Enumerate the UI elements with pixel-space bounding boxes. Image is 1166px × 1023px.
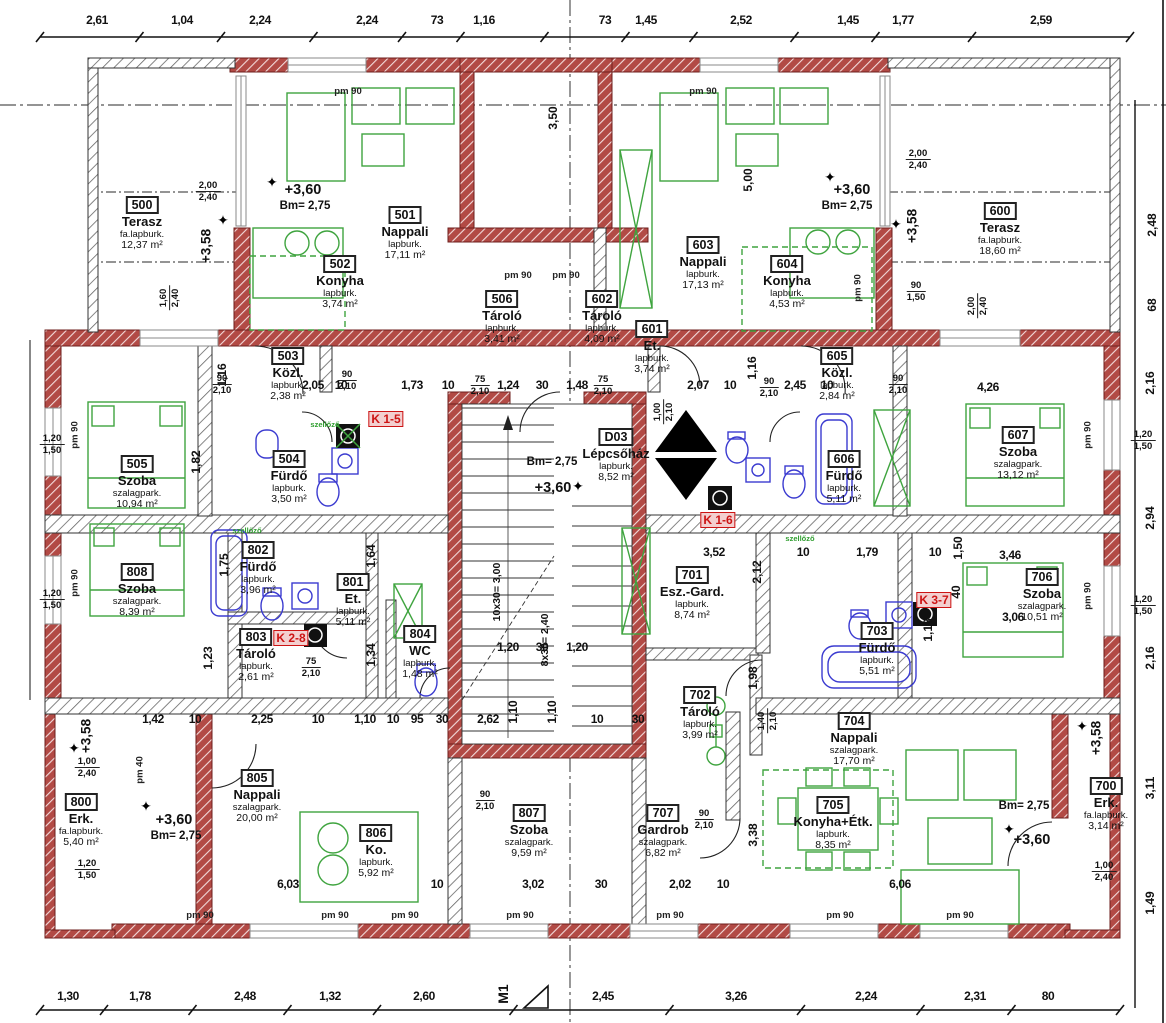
room-name: Tároló bbox=[482, 309, 522, 324]
room-name: Nappali bbox=[680, 255, 727, 270]
dimension-label: 6,03 bbox=[277, 877, 299, 891]
elevation-label: +3,58 bbox=[1089, 721, 1104, 755]
opening-size-label: 902,10 bbox=[338, 369, 357, 393]
dimension-label: 1,73 bbox=[401, 378, 423, 392]
room-name: Tároló bbox=[582, 309, 622, 324]
stair-formula-label: 8x30= 2,40 bbox=[539, 614, 551, 667]
room-name: Közl. bbox=[272, 366, 303, 381]
room-area: 4,53 m² bbox=[769, 299, 805, 311]
room-number: 808 bbox=[121, 563, 154, 581]
elevation-label: +3,58 bbox=[79, 719, 94, 753]
dimension-label: 2,02 bbox=[669, 877, 691, 891]
room-number: 702 bbox=[684, 686, 717, 704]
room-label-703: 703Fürdőlapburk.5,51 m² bbox=[859, 622, 896, 678]
opening-size-label: 752,10 bbox=[471, 374, 490, 398]
clear-height-label: Bm= 2,75 bbox=[280, 200, 331, 212]
room-area: 17,70 m² bbox=[833, 756, 874, 768]
dimension-label: 1,45 bbox=[635, 13, 657, 27]
opening-size-label: 1,002,40 bbox=[75, 756, 100, 780]
flue-label: K 1-6 bbox=[700, 512, 735, 528]
room-number: 803 bbox=[240, 628, 273, 646]
elevation-marker-star-icon: ✦ bbox=[824, 170, 836, 184]
room-number: 802 bbox=[242, 541, 275, 559]
room-label-501: 501Nappalilapburk.17,11 m² bbox=[382, 206, 429, 262]
dimension-label: 3,52 bbox=[703, 545, 725, 559]
dimension-label: 1,16 bbox=[745, 356, 759, 379]
elevation-label: +3,60 bbox=[285, 182, 322, 198]
room-area: 4,09 m² bbox=[584, 334, 620, 346]
opening-width: 1,00 bbox=[1092, 860, 1117, 872]
room-name: Fürdő bbox=[859, 641, 896, 656]
opening-size-label: 1,201,50 bbox=[40, 433, 65, 457]
room-number: 805 bbox=[241, 769, 274, 787]
elevation-marker-star-icon: ✦ bbox=[1076, 719, 1088, 733]
opening-height: 2,40 bbox=[906, 160, 931, 171]
room-label-D03: D03Lépcsőházlapburk.8,52 m² bbox=[582, 428, 649, 484]
sink bbox=[292, 583, 318, 609]
dimension-label: 3,02 bbox=[522, 877, 544, 891]
room-area: 5,51 m² bbox=[859, 666, 895, 678]
room-number: 705 bbox=[817, 796, 850, 814]
room-label-800: 800Erk.fa.lapburk.5,40 m² bbox=[59, 793, 103, 849]
room-label-503: 503Közl.lapburk.2,38 m² bbox=[270, 347, 306, 403]
dimension-label: 1,18 bbox=[921, 618, 935, 641]
dimension-label: 6,06 bbox=[889, 877, 911, 891]
opening-size-label: 901,50 bbox=[907, 280, 926, 304]
room-name: Nappali bbox=[234, 788, 281, 803]
room-label-506: 506Tárolólapburk.3,41 m² bbox=[482, 290, 522, 346]
opening-height: 2,10 bbox=[476, 801, 495, 812]
opening-width: 90 bbox=[338, 369, 357, 381]
room-label-500: 500Teraszfa.lapburk.12,37 m² bbox=[120, 196, 164, 252]
room-area: 5,11 m² bbox=[336, 617, 371, 629]
opening-width: 2,00 bbox=[966, 294, 978, 319]
room-label-605: 605Közl.lapburk.2,84 m² bbox=[819, 347, 855, 403]
opening-height: 2,40 bbox=[1092, 872, 1117, 883]
parapet-label: pm 90 bbox=[334, 86, 361, 97]
dimension-label: 2,48 bbox=[1145, 213, 1159, 236]
room-label-606: 606Fürdőlapburk.5,11 m² bbox=[826, 450, 863, 506]
dimension-label: 2,24 bbox=[855, 989, 877, 1003]
dimension-label: 2,48 bbox=[234, 989, 256, 1003]
room-label-601: 601Et.lapburk.3,74 m² bbox=[634, 320, 670, 376]
opening-width: 1,00 bbox=[75, 756, 100, 768]
room-label-700: 700Erk.fa.lapburk.3,14 m² bbox=[1084, 777, 1128, 833]
opening-width: 1,20 bbox=[40, 433, 65, 445]
opening-width: 90 bbox=[907, 280, 926, 292]
dimension-label: 73 bbox=[599, 13, 612, 27]
toilet bbox=[783, 466, 805, 498]
dimension-label: 1,16 bbox=[473, 13, 495, 27]
opening-width: 2,00 bbox=[196, 180, 221, 192]
room-number: 800 bbox=[65, 793, 98, 811]
parapet-label: pm 90 bbox=[946, 910, 973, 921]
room-area: 8,74 m² bbox=[674, 610, 710, 622]
room-area: 3,50 m² bbox=[271, 494, 307, 506]
dimension-label: 10 bbox=[387, 712, 400, 726]
room-number: D03 bbox=[599, 428, 634, 446]
opening-height: 2,10 bbox=[665, 400, 676, 425]
room-area: 2,61 m² bbox=[238, 672, 274, 684]
room-area: 17,13 m² bbox=[682, 280, 723, 292]
room-number: 504 bbox=[273, 450, 306, 468]
clear-height-label: Bm= 2,75 bbox=[527, 456, 578, 468]
opening-size-label: 752,10 bbox=[302, 656, 321, 680]
dimension-label: 68 bbox=[1145, 298, 1159, 311]
room-name: Szoba bbox=[510, 823, 548, 838]
parapet-label: pm 40 bbox=[135, 756, 146, 783]
room-label-604: 604Konyhalapburk.4,53 m² bbox=[763, 255, 811, 311]
parapet-label: pm 90 bbox=[1083, 582, 1094, 609]
parapet-label: pm 90 bbox=[186, 910, 213, 921]
dimension-label: 2,61 bbox=[86, 13, 108, 27]
dimension-label: 1,42 bbox=[142, 712, 164, 726]
dimension-label: 3,06 bbox=[1002, 610, 1024, 624]
room-number: 707 bbox=[647, 804, 680, 822]
room-label-805: 805Nappaliszalagpark.20,00 m² bbox=[233, 769, 282, 825]
opening-width: 75 bbox=[302, 656, 321, 668]
opening-height: 2,10 bbox=[213, 385, 232, 396]
parapet-label: pm 90 bbox=[826, 910, 853, 921]
flue-label: K 3-7 bbox=[916, 592, 951, 608]
opening-width: 90 bbox=[695, 808, 714, 820]
room-label-502: 502Konyhalapburk.3,74 m² bbox=[316, 255, 364, 311]
room-number: 703 bbox=[861, 622, 894, 640]
dimension-label: 30 bbox=[536, 378, 549, 392]
room-area: 2,84 m² bbox=[819, 391, 855, 403]
dimension-label: 10 bbox=[821, 378, 834, 392]
opening-size-label: 752,10 bbox=[594, 374, 613, 398]
dimension-label: 3,38 bbox=[746, 823, 760, 846]
opening-size-label: 1,201,50 bbox=[75, 858, 100, 882]
dimension-label: 1,23 bbox=[201, 646, 215, 669]
room-label-707: 707Gardrobszalagpark.6,82 m² bbox=[637, 804, 688, 860]
parapet-label: pm 90 bbox=[656, 910, 683, 921]
dimension-label: 3,46 bbox=[999, 548, 1021, 562]
room-area: 8,35 m² bbox=[815, 840, 851, 852]
parapet-label: pm 90 bbox=[391, 910, 418, 921]
parapet-label: pm 90 bbox=[1083, 421, 1094, 448]
room-number: 606 bbox=[828, 450, 861, 468]
dimension-label: 2,52 bbox=[730, 13, 752, 27]
dimension-label: 2,25 bbox=[251, 712, 273, 726]
dimension-label: 3,50 bbox=[546, 106, 560, 129]
room-area: 2,38 m² bbox=[270, 391, 306, 403]
dimension-label: 2,16 bbox=[1143, 646, 1157, 669]
room-name: Fürdő bbox=[271, 469, 308, 484]
elevation-label: +3,60 bbox=[834, 182, 871, 198]
clear-height-label: Bm= 2,75 bbox=[151, 830, 202, 842]
room-name: Terasz bbox=[980, 221, 1020, 236]
washing-machine bbox=[332, 448, 358, 474]
dimension-label: 10 bbox=[717, 877, 730, 891]
opening-size-label: 902,10 bbox=[760, 376, 779, 400]
room-number: 706 bbox=[1026, 568, 1059, 586]
room-area: 3,74 m² bbox=[322, 299, 358, 311]
room-label-803: 803Tárolólapburk.2,61 m² bbox=[236, 628, 276, 684]
room-number: 506 bbox=[486, 290, 519, 308]
room-name: Fürdő bbox=[240, 560, 277, 575]
dimension-label: 1,79 bbox=[856, 545, 878, 559]
clear-height-label: Bm= 2,75 bbox=[999, 800, 1050, 812]
parapet-label: pm 90 bbox=[504, 270, 531, 281]
opening-size-label: 2,002,40 bbox=[966, 294, 990, 319]
opening-size-label: 1,402,10 bbox=[756, 709, 780, 734]
dimension-label: 2,07 bbox=[687, 378, 709, 392]
dimension-label: 1,77 bbox=[892, 13, 914, 27]
dimension-label: 30 bbox=[595, 877, 608, 891]
room-name: Tároló bbox=[680, 705, 720, 720]
elevation-label: +3,60 bbox=[156, 812, 193, 828]
room-label-504: 504Fürdőlapburk.3,50 m² bbox=[271, 450, 308, 506]
section-triangle-icon bbox=[524, 986, 548, 1008]
dimension-label: 2,62 bbox=[477, 712, 499, 726]
opening-height: 2,10 bbox=[695, 820, 714, 831]
dimension-label: 1,45 bbox=[837, 13, 859, 27]
opening-height: 2,10 bbox=[302, 668, 321, 679]
dimension-label: 1,49 bbox=[1143, 891, 1157, 914]
room-name: Fürdő bbox=[826, 469, 863, 484]
room-label-706: 706Szobaszalagpark.10,51 m² bbox=[1018, 568, 1067, 624]
parapet-label: pm 90 bbox=[506, 910, 533, 921]
dimension-label: 5,00 bbox=[741, 168, 755, 191]
room-area: 3,74 m² bbox=[634, 364, 670, 376]
dimension-label: 1,10 bbox=[354, 712, 376, 726]
opening-height: 1,50 bbox=[907, 292, 926, 303]
room-label-602: 602Tárolólapburk.4,09 m² bbox=[582, 290, 622, 346]
dimension-label: 1,30 bbox=[57, 989, 79, 1003]
dimension-label: 1,10 bbox=[545, 700, 559, 723]
room-name: Nappali bbox=[382, 225, 429, 240]
opening-size-label: 1,602,40 bbox=[158, 286, 182, 311]
elevation-marker-star-icon: ✦ bbox=[217, 213, 229, 227]
elevation-marker-star-icon: ✦ bbox=[1003, 822, 1015, 836]
dimension-label: 2,05 bbox=[302, 378, 324, 392]
room-label-704: 704Nappaliszalagpark.17,70 m² bbox=[830, 712, 879, 768]
room-area: 6,82 m² bbox=[645, 848, 681, 860]
parapet-label: pm 90 bbox=[321, 910, 348, 921]
dimension-label: 1,82 bbox=[189, 450, 203, 473]
room-label-808: 808Szobaszalagpark.8,39 m² bbox=[113, 563, 162, 619]
room-name: Lépcsőház bbox=[582, 447, 649, 462]
room-number: 604 bbox=[771, 255, 804, 273]
opening-height: 1,50 bbox=[1131, 606, 1156, 617]
room-number: 700 bbox=[1090, 777, 1123, 795]
room-area: 10,51 m² bbox=[1021, 612, 1062, 624]
room-number: 701 bbox=[676, 566, 709, 584]
dimension-label: 10 bbox=[431, 877, 444, 891]
opening-size-label: 1,201,50 bbox=[40, 588, 65, 612]
room-area: 5,40 m² bbox=[63, 837, 99, 849]
opening-width: 75 bbox=[471, 374, 490, 386]
toilet bbox=[317, 474, 339, 506]
opening-height: 2,40 bbox=[171, 286, 182, 311]
opening-height: 2,40 bbox=[75, 768, 100, 779]
opening-width: 1,20 bbox=[40, 588, 65, 600]
opening-size-label: 902,10 bbox=[889, 373, 908, 397]
opening-width: 75 bbox=[594, 374, 613, 386]
dimension-label: 4,26 bbox=[977, 380, 999, 394]
dimension-label: 1,50 bbox=[951, 536, 965, 559]
dimension-label: 2,24 bbox=[356, 13, 378, 27]
dimension-label: 3,26 bbox=[725, 989, 747, 1003]
room-number: 503 bbox=[272, 347, 305, 365]
room-name: Erk. bbox=[1094, 796, 1119, 811]
room-number: 801 bbox=[337, 573, 370, 591]
opening-size-label: 902,10 bbox=[476, 789, 495, 813]
dimension-label: 30 bbox=[632, 712, 645, 726]
dimension-label: 10 bbox=[312, 712, 325, 726]
room-number: 603 bbox=[687, 236, 720, 254]
room-name: Szoba bbox=[999, 445, 1037, 460]
room-name: Et. bbox=[345, 592, 362, 607]
toilet bbox=[726, 432, 748, 463]
opening-height: 2,40 bbox=[979, 294, 990, 319]
room-number: 607 bbox=[1002, 426, 1035, 444]
room-label-802: 802Fürdőlapburk.3,96 m² bbox=[240, 541, 277, 597]
floor-plan-drawing bbox=[0, 0, 1166, 1023]
room-label-701: 701Esz.-Gard.lapburk.8,74 m² bbox=[660, 566, 724, 622]
room-name: Esz.-Gard. bbox=[660, 585, 724, 600]
room-label-702: 702Tárolólapburk.3,99 m² bbox=[680, 686, 720, 742]
room-area: 12,37 m² bbox=[121, 240, 162, 252]
room-area: 10,94 m² bbox=[116, 499, 157, 511]
opening-width: 90 bbox=[476, 789, 495, 801]
opening-width: 1,20 bbox=[1131, 594, 1156, 606]
room-label-801: 801Et.lapburk.5,11 m² bbox=[336, 573, 371, 629]
parapet-label: pm 90 bbox=[70, 421, 81, 448]
dimension-label: 30 bbox=[436, 712, 449, 726]
room-number: 501 bbox=[389, 206, 422, 224]
elevation-label: +3,60 bbox=[535, 480, 572, 496]
elevation-label: +3,58 bbox=[905, 209, 920, 243]
room-number: 601 bbox=[636, 320, 669, 338]
opening-width: 2,00 bbox=[906, 148, 931, 160]
dimension-label: 80 bbox=[1042, 989, 1055, 1003]
room-area: 8,39 m² bbox=[119, 607, 155, 619]
opening-size-label: 2,002,40 bbox=[906, 148, 931, 172]
room-number: 806 bbox=[360, 824, 393, 842]
elevation-marker-star-icon: ✦ bbox=[890, 217, 902, 231]
elevation-marker-star-icon: ✦ bbox=[572, 479, 584, 493]
opening-height: 2,40 bbox=[196, 192, 221, 203]
opening-height: 1,50 bbox=[75, 870, 100, 881]
dimension-label: 1,10 bbox=[506, 700, 520, 723]
room-area: 3,96 m² bbox=[240, 585, 276, 597]
parapet-label: pm 90 bbox=[70, 569, 81, 596]
room-label-607: 607Szobaszalagpark.13,12 m² bbox=[994, 426, 1043, 482]
opening-size-label: 1,002,40 bbox=[1092, 860, 1117, 884]
elevation-marker-star-icon: ✦ bbox=[140, 799, 152, 813]
opening-width: 90 bbox=[213, 373, 232, 385]
vent-label: szellőző bbox=[310, 420, 339, 429]
dimension-label: 3,11 bbox=[1143, 777, 1157, 800]
elevation-label: +3,60 bbox=[1014, 832, 1051, 848]
opening-height: 1,50 bbox=[40, 600, 65, 611]
room-name: Erk. bbox=[69, 812, 94, 827]
dimension-label: 2,16 bbox=[1143, 371, 1157, 394]
opening-width: 1,00 bbox=[652, 400, 664, 425]
room-name: Konyha bbox=[316, 274, 364, 289]
dimension-label: 1,20 bbox=[497, 640, 519, 654]
opening-width: 1,40 bbox=[756, 709, 768, 734]
room-name: Tároló bbox=[236, 647, 276, 662]
room-name: Gardrob bbox=[637, 823, 688, 838]
room-area: 3,41 m² bbox=[484, 334, 520, 346]
opening-width: 1,60 bbox=[158, 286, 170, 311]
opening-size-label: 2,002,40 bbox=[196, 180, 221, 204]
dimension-label: 1,98 bbox=[746, 666, 760, 689]
room-name: Terasz bbox=[122, 215, 162, 230]
room-name: Ko. bbox=[366, 843, 387, 858]
opening-height: 2,10 bbox=[471, 386, 490, 397]
dimension-label: 1,04 bbox=[171, 13, 193, 27]
dimension-label: 2,12 bbox=[750, 560, 764, 583]
room-label-705: 705Konyha+Étk.lapburk.8,35 m² bbox=[793, 796, 872, 852]
opening-size-label: 1,201,50 bbox=[1131, 594, 1156, 618]
dimension-label: 2,45 bbox=[592, 989, 614, 1003]
room-number: 704 bbox=[838, 712, 871, 730]
opening-height: 2,10 bbox=[760, 388, 779, 399]
room-number: 804 bbox=[404, 625, 437, 643]
dimension-label: 10 bbox=[591, 712, 604, 726]
room-area: 18,60 m² bbox=[979, 246, 1020, 258]
dimension-label: 73 bbox=[431, 13, 444, 27]
room-number: 602 bbox=[586, 290, 619, 308]
dimension-label: 10 bbox=[797, 545, 810, 559]
room-number: 605 bbox=[821, 347, 854, 365]
room-label-603: 603Nappalilapburk.17,13 m² bbox=[680, 236, 727, 292]
opening-height: 2,10 bbox=[338, 381, 357, 392]
parapet-label: pm 90 bbox=[552, 270, 579, 281]
room-label-600: 600Teraszfa.lapburk.18,60 m² bbox=[978, 202, 1022, 258]
opening-height: 1,50 bbox=[1131, 441, 1156, 452]
dimension-label: 10 bbox=[189, 712, 202, 726]
opening-width: 1,20 bbox=[1131, 429, 1156, 441]
dimension-label: 2,31 bbox=[964, 989, 986, 1003]
room-label-807: 807Szobaszalagpark.9,59 m² bbox=[505, 804, 554, 860]
elevation-marker-star-icon: ✦ bbox=[266, 175, 278, 189]
room-name: Nappali bbox=[831, 731, 878, 746]
dimension-label: 2,45 bbox=[784, 378, 806, 392]
opening-width: 1,20 bbox=[75, 858, 100, 870]
stair-arrow-down-icon bbox=[655, 458, 717, 500]
room-name: Et. bbox=[644, 339, 661, 354]
room-number: 600 bbox=[984, 202, 1017, 220]
dimension-label: 1,20 bbox=[566, 640, 588, 654]
parapet-label: pm 90 bbox=[853, 274, 864, 301]
room-area: 5,11 m² bbox=[827, 494, 862, 506]
vent-label: szellőző bbox=[232, 526, 261, 535]
opening-size-label: 902,10 bbox=[213, 373, 232, 397]
washing-machine bbox=[746, 458, 770, 482]
dimension-label: 2,59 bbox=[1030, 13, 1052, 27]
opening-size-label: 1,002,10 bbox=[652, 400, 676, 425]
dimension-label: 1,64 bbox=[364, 544, 378, 567]
room-label-505: 505Szobaszalagpark.10,94 m² bbox=[113, 455, 162, 511]
elevation-marker-star-icon: ✦ bbox=[68, 741, 80, 755]
vent-label: szellőző bbox=[785, 534, 814, 543]
flue-label: K 2-8 bbox=[273, 630, 308, 646]
dimension-label: 1,34 bbox=[364, 643, 378, 666]
dimension-label: 1,48 bbox=[566, 378, 588, 392]
room-number: 502 bbox=[324, 255, 357, 273]
opening-height: 2,10 bbox=[889, 385, 908, 396]
room-name: Konyha bbox=[763, 274, 811, 289]
room-number: 505 bbox=[121, 455, 154, 473]
dimension-label: 1,24 bbox=[497, 378, 519, 392]
opening-size-label: 1,201,50 bbox=[1131, 429, 1156, 453]
